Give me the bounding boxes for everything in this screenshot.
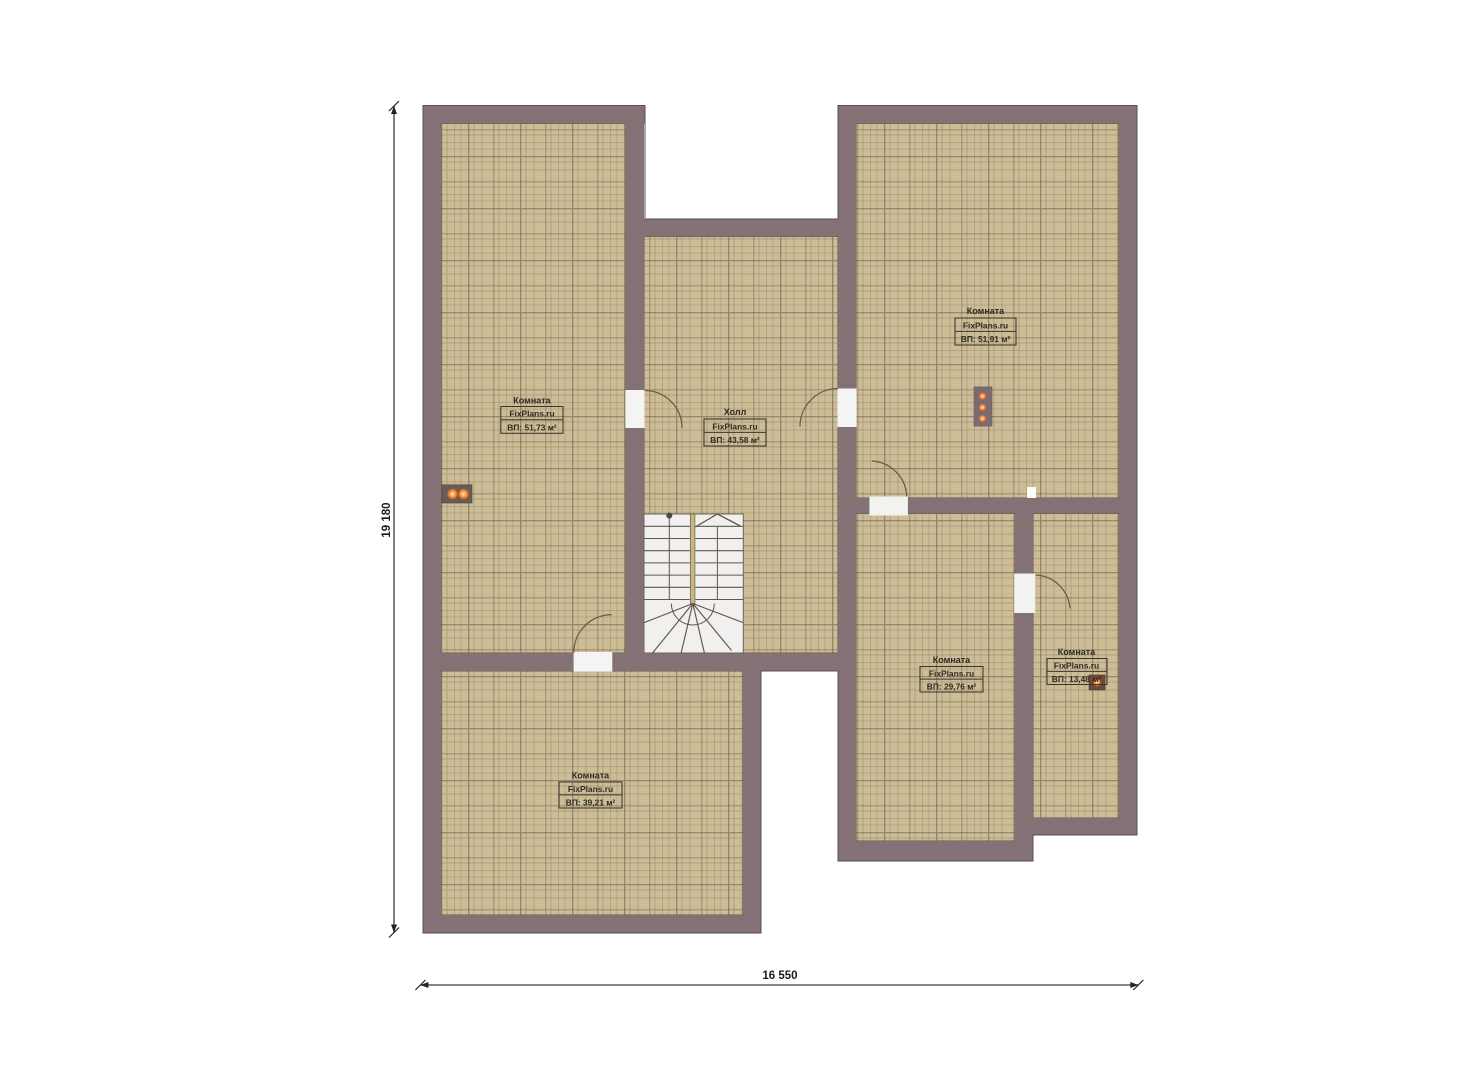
svg-text:FixPlans.ru: FixPlans.ru [509, 409, 554, 419]
svg-text:ВП: 39,21 м²: ВП: 39,21 м² [566, 797, 616, 807]
svg-text:Комната: Комната [513, 396, 551, 406]
svg-text:Комната: Комната [933, 655, 971, 665]
svg-text:ВП: 13,48 м²: ВП: 13,48 м² [1052, 674, 1102, 684]
svg-text:FixPlans.ru: FixPlans.ru [929, 669, 974, 679]
svg-text:FixPlans.ru: FixPlans.ru [568, 784, 613, 794]
svg-text:Холл: Холл [724, 407, 747, 417]
svg-text:ВП: 43,58 м²: ВП: 43,58 м² [710, 435, 760, 445]
svg-text:16 550: 16 550 [762, 970, 797, 982]
svg-text:ВП: 51,91 м²: ВП: 51,91 м² [961, 334, 1011, 344]
svg-text:ВП: 29,76 м²: ВП: 29,76 м² [927, 682, 977, 692]
svg-text:Комната: Комната [572, 771, 610, 781]
svg-text:Комната: Комната [967, 306, 1005, 316]
svg-text:19 180: 19 180 [381, 502, 393, 537]
svg-text:FixPlans.ru: FixPlans.ru [1054, 661, 1099, 671]
svg-text:Комната: Комната [1058, 647, 1096, 657]
svg-text:FixPlans.ru: FixPlans.ru [712, 421, 757, 431]
svg-text:FixPlans.ru: FixPlans.ru [963, 320, 1008, 330]
svg-text:ВП: 51,73 м²: ВП: 51,73 м² [507, 422, 557, 432]
